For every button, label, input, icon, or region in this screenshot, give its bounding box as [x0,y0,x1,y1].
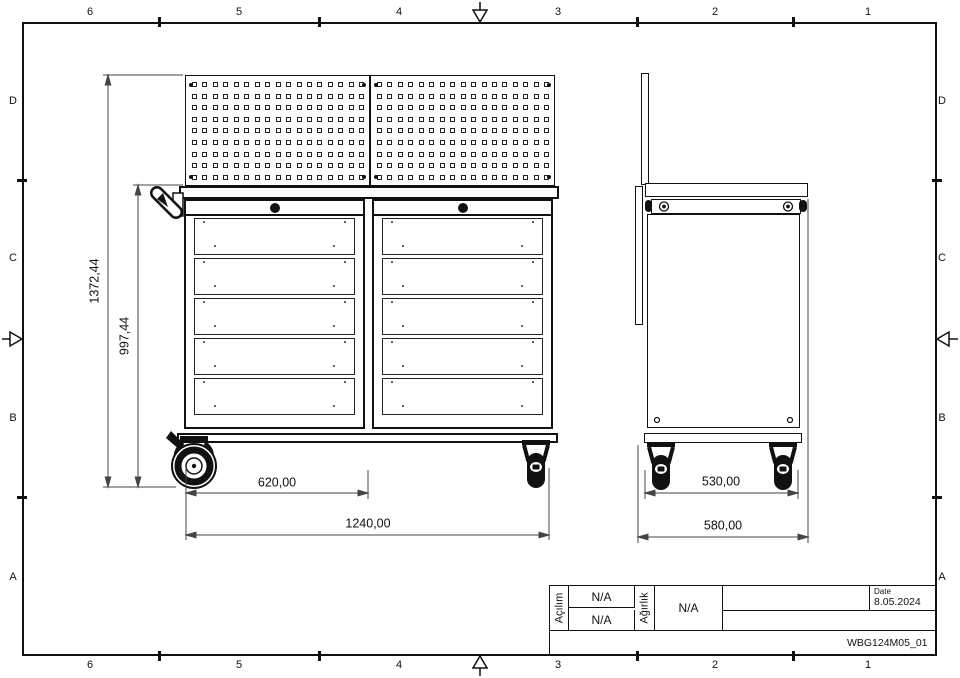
pegboard-hole [307,117,312,122]
pegboard-hole [338,140,343,145]
pegboard-hole [244,105,249,110]
pegboard-hole [482,128,487,133]
pegboard-hole [440,117,445,122]
drawer-screw [333,405,335,407]
pegboard-hole [265,175,270,180]
zone-tick [318,17,321,27]
pegboard-hole [419,128,424,133]
pegboard-hole [440,105,445,110]
pegboard-hole [419,163,424,168]
pegboard-hole [482,140,487,145]
zone-row-label-right: C [938,252,946,264]
drawer-screw [203,341,205,343]
pegboard-hole [244,82,249,87]
pegboard-hole [482,94,487,99]
zone-col-label-top: 3 [555,6,561,18]
pegboard-hole [338,163,343,168]
pegboard-hole [317,140,322,145]
pegboard-hole [265,128,270,133]
pegboard-hole [492,163,497,168]
drawer-screw [214,365,216,367]
pegboard-hole [429,175,434,180]
pegboard-hole [328,175,333,180]
pegboard-hole [244,175,249,180]
pegboard-hole [276,117,281,122]
pegboard-hole [387,82,392,87]
pegboard-hole [349,152,354,157]
pegboard-hole [202,105,207,110]
drawer-front [194,258,355,295]
panel-screw [362,83,366,87]
drawing-number-strip: WBG124M05_01 [550,630,937,656]
zone-tick [932,179,942,182]
pegboard-hole [523,105,528,110]
pegboard-hole [359,163,364,168]
pegboard-hole [387,163,392,168]
pegboard-hole [255,140,260,145]
pegboard-hole [398,140,403,145]
pegboard-hole [307,140,312,145]
drawer-front [382,298,543,335]
pegboard-hole [328,152,333,157]
pegboard-hole [502,140,507,145]
pegboard-hole [408,175,413,180]
pegboard-hole [408,117,413,122]
pegboard-hole [377,163,382,168]
pegboard-hole [398,128,403,133]
pegboard-hole [377,140,382,145]
pegboard-hole [244,163,249,168]
pegboard-hole [359,105,364,110]
pegboard-hole [398,94,403,99]
pegboard-hole [377,175,382,180]
pegboard-hole [349,105,354,110]
pegboard-hole [265,140,270,145]
pegboard-hole [338,152,343,157]
pegboard-hole [429,163,434,168]
zone-row-label-left: C [9,252,17,264]
pegboard-hole [502,105,507,110]
pegboard-hole [265,105,270,110]
pegboard-hole [202,152,207,157]
drawing-sheet: 665544332211DDCCBBAA [0,0,960,678]
pegboard-hole [398,175,403,180]
pegboard-hole [338,175,343,180]
drawer-screw [402,285,404,287]
center-mark-bottom [473,656,487,676]
pegboard-hole [523,152,528,157]
pegboard-hole [244,94,249,99]
pegboard-hole [255,117,260,122]
pegboard-hole [534,94,539,99]
dim-total-depth: 580,00 [704,520,742,533]
pegboard-hole [286,140,291,145]
pegboard-hole [544,117,549,122]
empty-cell-divider [723,610,937,611]
zone-row-label-left: A [9,571,16,583]
pegboard-hole [450,152,455,157]
pegboard-hole [276,82,281,87]
pegboard-hole [471,175,476,180]
pegboard-hole [544,163,549,168]
pegboard-hole [523,82,528,87]
panel-screw [547,83,551,87]
pegboard-hole [234,82,239,87]
pegboard-hole [213,163,218,168]
pegboard-hole [223,94,228,99]
pegboard-hole [502,175,507,180]
pegboard-hole [265,82,270,87]
pegboard-hole [450,105,455,110]
pegboard-hole [244,128,249,133]
drawer-front [382,218,543,255]
pegboard-hole [234,163,239,168]
pegboard-hole [398,163,403,168]
pegboard-hole [286,82,291,87]
drawer-screw [521,285,523,287]
pegboard-hole [297,117,302,122]
pegboard-hole [461,140,466,145]
pegboard-hole [244,152,249,157]
zone-tick [636,17,639,27]
cabinet-body-side [647,214,800,428]
drawer-screw [532,261,534,263]
pegboard-hole [202,117,207,122]
pegboard-hole [387,140,392,145]
pegboard-hole [359,152,364,157]
pegboard-hole [338,94,343,99]
worktop-front [179,186,559,199]
pegboard-hole [471,117,476,122]
pegboard-hole [359,140,364,145]
drawer-screw [214,325,216,327]
pegboard-hole [349,140,354,145]
drawer-screw [391,261,393,263]
drawer-front [194,338,355,375]
pegboard-hole [192,128,197,133]
pegboard-hole [502,82,507,87]
pegboard-hole [492,105,497,110]
pegboard-hole [338,105,343,110]
pegboard-hole [534,140,539,145]
drawer-screw [402,365,404,367]
pegboard-hole [544,128,549,133]
pegboard-hole [317,105,322,110]
pegboard-hole [471,82,476,87]
pegboard-hole [450,128,455,133]
pegboard-hole [387,105,392,110]
pegboard-hole [440,128,445,133]
pegboard-hole [419,105,424,110]
pegboard-hole [387,175,392,180]
pegboard-hole [213,175,218,180]
pegboard-hole [255,128,260,133]
pegboard-hole [328,105,333,110]
pegboard-hole [255,105,260,110]
pegboard-hole [523,94,528,99]
zone-col-label-bottom: 4 [396,659,402,671]
pegboard-hole [461,94,466,99]
pegboard-hole [440,175,445,180]
pegboard-hole [223,105,228,110]
pegboard-hole [338,128,343,133]
zone-tick [792,17,795,27]
pegboard-hole [255,82,260,87]
top-rail-line [374,214,551,216]
pegboard-hole [297,163,302,168]
pegboard-hole [502,163,507,168]
fold-label-cell: Açılım [550,586,569,630]
drawer-front [194,378,355,415]
pegboard-hole [286,152,291,157]
zone-col-label-top: 4 [396,6,402,18]
pegboard-hole [317,163,322,168]
dim-total-width: 1240,00 [345,518,390,531]
pegboard-hole [234,117,239,122]
drawer-screw [391,381,393,383]
panel-screw [374,175,378,179]
lock-knob [270,203,280,213]
pegboard-hole [377,152,382,157]
pegboard-hole [255,94,260,99]
pegboard-hole [450,94,455,99]
pegboard-hole [440,94,445,99]
pegboard-hole [482,175,487,180]
pegboard-hole [276,152,281,157]
pegboard-hole [440,82,445,87]
pegboard-hole [398,82,403,87]
zone-row-label-left: D [9,95,17,107]
pegboard-hole [492,82,497,87]
pegboard-hole [408,152,413,157]
zone-col-label-top: 1 [865,6,871,18]
pegboard-hole [387,117,392,122]
drawer-screw [214,245,216,247]
pegboard-hole [461,152,466,157]
pegboard-hole [387,128,392,133]
pegboard-hole [202,82,207,87]
pegboard-hole [359,128,364,133]
pegboard-hole [461,128,466,133]
pegboard-hole [461,175,466,180]
pegboard-hole [276,163,281,168]
pegboard-hole [513,117,518,122]
weight-label: Ağırlık [639,592,651,623]
center-mark-right [937,332,958,346]
pegboard-hole [202,128,207,133]
pegboard-hole [328,128,333,133]
pegboard-hole [328,117,333,122]
dim-cabinet-height: 997,44 [119,317,132,355]
top-rail-line [186,214,363,216]
pegboard-hole [265,94,270,99]
pegboard-hole [513,128,518,133]
pegboard-hole [297,105,302,110]
pegboard-hole [223,163,228,168]
pegboard-hole [429,82,434,87]
drawer-front [382,378,543,415]
pegboard-hole [429,128,434,133]
pegboard-hole [377,105,382,110]
pegboard-hole [492,175,497,180]
pegboard-hole [223,140,228,145]
cabinet [184,199,365,429]
pegboard-hole [377,94,382,99]
pegboard-hole [349,117,354,122]
pegboard-hole [213,82,218,87]
pegboard-panel [370,75,555,186]
drawer-front [382,338,543,375]
pegboard-hole [377,128,382,133]
pegboard-hole [482,82,487,87]
drawer-screw [521,365,523,367]
pegboard-hole [317,117,322,122]
pegboard-hole [265,163,270,168]
pegboard-hole [482,105,487,110]
pegboard-hole [307,175,312,180]
pegboard-hole [513,175,518,180]
pegboard-hole [349,163,354,168]
center-mark-left [2,332,22,346]
zone-row-label-right: D [938,95,946,107]
zone-row-label-right: A [938,571,945,583]
drawer-screw [391,221,393,223]
pegboard-hole [255,152,260,157]
pegboard-hole [377,117,382,122]
pegboard-hole [192,105,197,110]
pegboard-hole [328,82,333,87]
pegboard-hole [523,175,528,180]
pegboard-hole [534,175,539,180]
pegboard-hole [297,128,302,133]
drawer-screw [344,301,346,303]
pegboard-hole [286,105,291,110]
pegboard-hole [471,152,476,157]
fold-value-1: N/A [591,590,611,604]
pegboard-hole [286,94,291,99]
drawer-screw [203,381,205,383]
drawer-screw [214,405,216,407]
date-cell: Date 8.05.2024 [869,586,937,610]
pegboard-hole [338,117,343,122]
zone-col-label-bottom: 6 [87,659,93,671]
pegboard-hole [450,117,455,122]
pegboard-hole [450,175,455,180]
drawer-screw [532,381,534,383]
pegboard-hole [265,117,270,122]
pegboard-hole [307,105,312,110]
drawer-screw [203,221,205,223]
pegboard-hole [429,94,434,99]
panel-screw [362,175,366,179]
drawer-screw [532,341,534,343]
pegboard-hole [450,82,455,87]
pegboard-hole [534,82,539,87]
pegboard-hole [419,175,424,180]
pegboard-hole [544,140,549,145]
pegboard-hole [192,117,197,122]
pegboard-hole [328,163,333,168]
pegboard-hole [534,163,539,168]
pegboard-hole [317,152,322,157]
pegboard-hole [482,117,487,122]
pegboard-hole [349,175,354,180]
pegboard-hole [223,175,228,180]
zone-col-label-bottom: 3 [555,659,561,671]
drawer-screw [344,341,346,343]
pegboard-hole [523,117,528,122]
pegboard-hole [502,117,507,122]
pegboard-hole [492,152,497,157]
drawer-screw [344,261,346,263]
weight-label-cell: Ağırlık [635,586,655,630]
pegboard-hole [276,94,281,99]
pegboard-hole [544,105,549,110]
pegboard-hole [461,105,466,110]
fold-value-2-cell: N/A [569,610,635,631]
pegboard-hole [223,128,228,133]
drawer-screw [391,301,393,303]
pegboard-hole [297,94,302,99]
drawer-screw [521,405,523,407]
pegboard-hole [408,94,413,99]
pegboard-hole [429,117,434,122]
pegboard-hole [377,82,382,87]
panel-screw [374,83,378,87]
dim-caster-span: 530,00 [702,476,740,489]
pegboard-hole [534,152,539,157]
pegboard-hole [408,128,413,133]
drawer-screw [532,301,534,303]
zone-tick [932,496,942,499]
zone-col-label-bottom: 2 [712,659,718,671]
pegboard-hole [276,175,281,180]
zone-row-label-left: B [9,412,16,424]
pegboard-hole [359,117,364,122]
cabinet [372,199,553,429]
zone-tick [158,651,161,661]
pegboard-hole [338,82,343,87]
pegboard-hole [234,175,239,180]
pegboard-hole [440,163,445,168]
lock-knob [458,203,468,213]
pegboard-hole [223,152,228,157]
zone-tick [17,496,27,499]
drawer-screw [402,245,404,247]
pegboard-hole [223,82,228,87]
pegboard-hole [349,94,354,99]
base-front [177,433,558,443]
pegboard-hole [286,117,291,122]
pegboard-hole [419,82,424,87]
drawer-screw [521,325,523,327]
drawer-screw [203,301,205,303]
pegboard-hole [349,82,354,87]
fold-value-1-cell: N/A [569,586,635,608]
pegboard-hole [429,105,434,110]
pegboard-hole [276,128,281,133]
pegboard-hole [461,117,466,122]
fold-label: Açılım [553,593,565,624]
weight-value-cell: N/A [655,586,723,630]
pegboard-hole [234,94,239,99]
pegboard-hole [317,94,322,99]
drawer-screw [344,381,346,383]
pegboard-hole [265,152,270,157]
pegboard-hole [213,128,218,133]
pegboard-hole [398,152,403,157]
pegboard-hole [192,94,197,99]
